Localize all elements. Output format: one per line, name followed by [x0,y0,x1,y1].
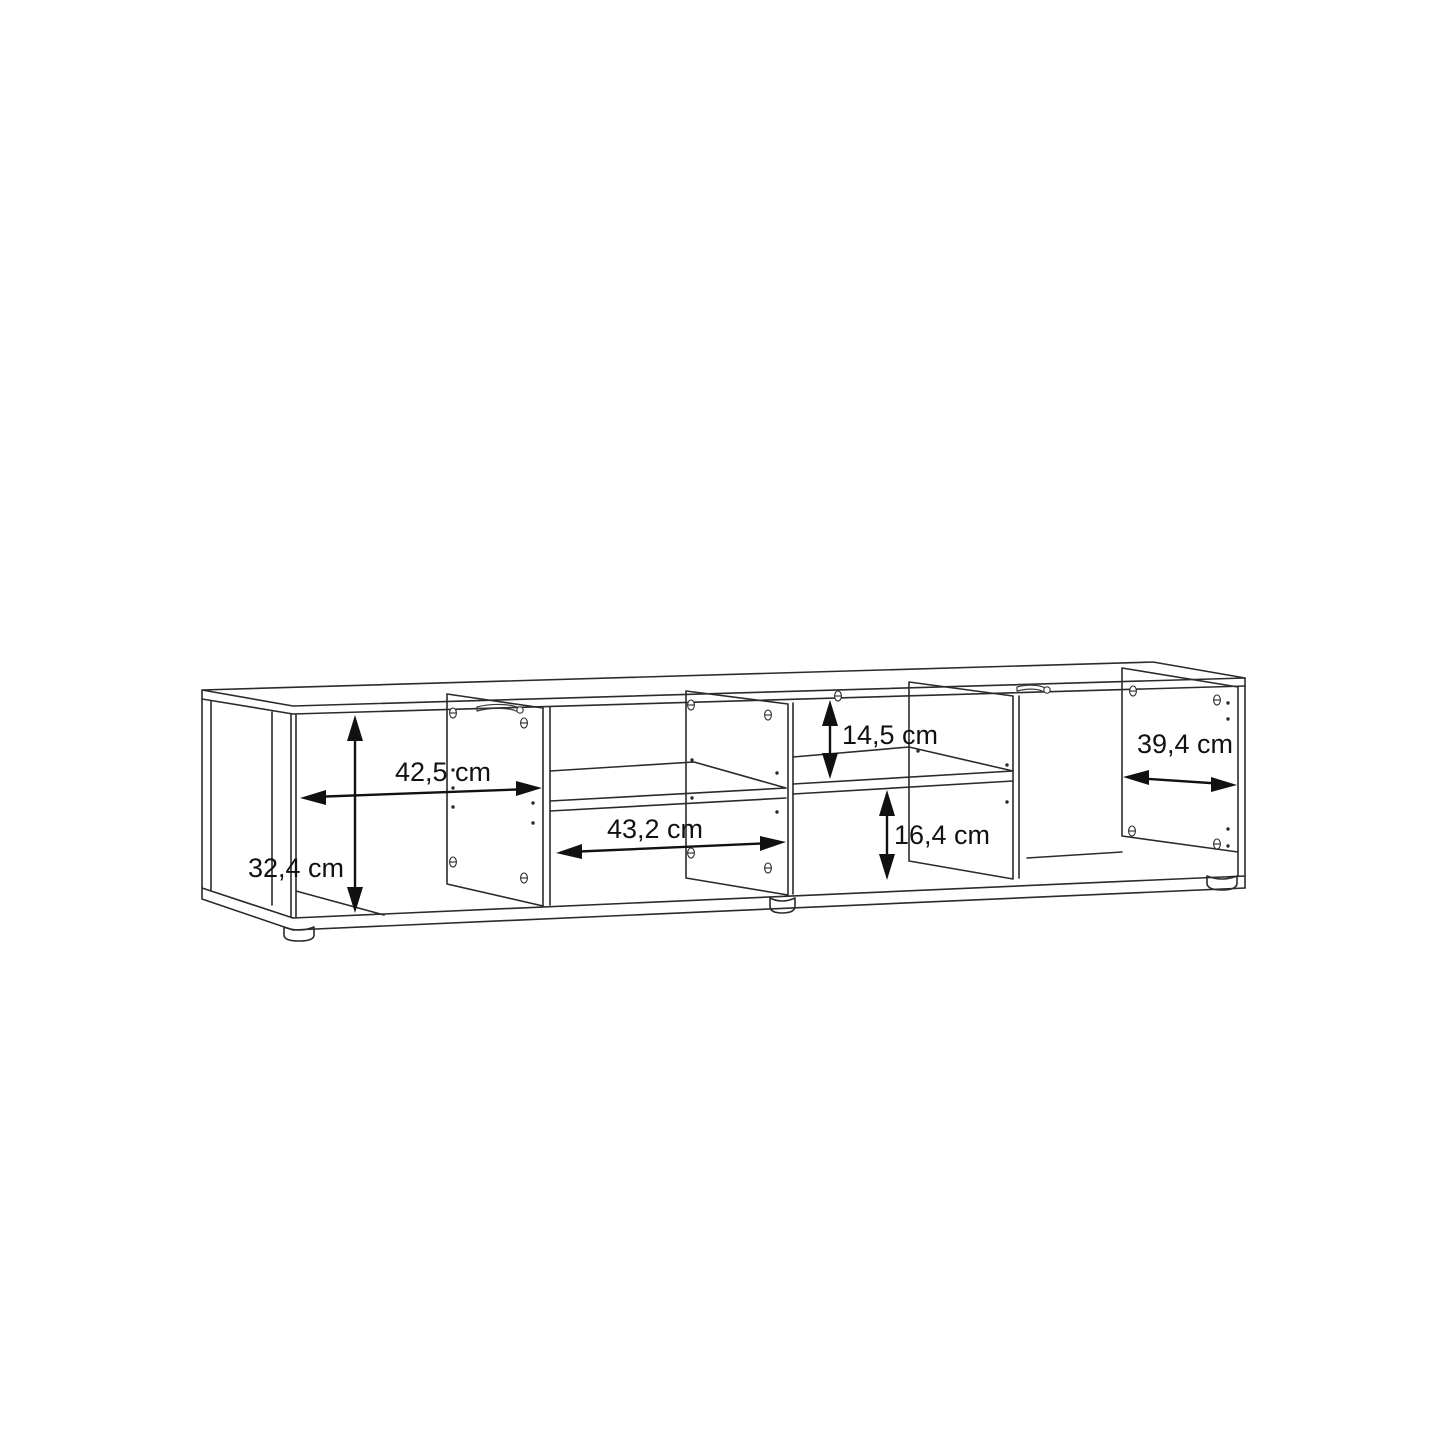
cam-hole-icon [450,857,457,867]
pin-hole-dot [1226,717,1229,720]
pin-hole-dot [1226,827,1229,830]
left-panel-inner-edges [272,712,384,918]
dimension-label-39-4: 39,4 cm [1137,729,1233,759]
cam-hole-icon [688,848,695,858]
dimension-label-14-5: 14,5 cm [842,720,938,750]
pin-hole-dot [1005,763,1008,766]
furniture-dimension-diagram: 42,5 cm 32,4 cm 43,2 cm 14,5 cm 16,4 cm … [0,0,1445,1445]
shelf-center-left [550,762,786,811]
pin-hole-dot [1226,701,1229,704]
cam-hole-icon [450,708,457,718]
pin-hole-dot [775,771,778,774]
divider-1 [447,694,550,906]
pin-hole-dot [775,810,778,813]
foot-right [1207,876,1237,890]
left-side-panel [202,690,293,930]
dimension-labels: 42,5 cm 32,4 cm 43,2 cm 14,5 cm 16,4 cm … [248,720,1233,883]
cam-hole-icon [1214,695,1221,705]
pin-hole-dot [1226,844,1229,847]
feet [284,876,1237,941]
dimension-label-16-4: 16,4 cm [894,820,990,850]
cam-hole-icon [1130,686,1137,696]
shelves [550,747,1013,811]
dimension-label-32-4: 32,4 cm [248,853,344,883]
dividers [447,682,1019,906]
cam-hole-icon [765,710,772,720]
pin-holes [451,701,1229,847]
cam-hole-icon [835,691,842,701]
pin-hole-dot [451,805,454,808]
pin-hole-dot [690,758,693,761]
dimension-label-43-2: 43,2 cm [607,814,703,844]
cam-hole-icon [765,863,772,873]
dimension-arrow-39-4 [1123,770,1237,792]
cam-hole-icon [688,700,695,710]
dimension-arrow-16-4 [879,790,895,880]
dimension-arrow-14-5 [822,700,838,779]
foot-middle [770,898,795,913]
cam-hole-icon [521,718,528,728]
pin-hole-dot [531,801,534,804]
cam-hole-icon [1129,826,1136,836]
dimension-arrow-32-4 [347,715,363,913]
pin-hole-dot [690,796,693,799]
lowboard-drawing: 42,5 cm 32,4 cm 43,2 cm 14,5 cm 16,4 cm … [0,0,1445,1445]
cam-hole-icon [521,873,528,883]
top-panel [202,662,1245,714]
pin-hole-dot [531,821,534,824]
dimension-label-42-5: 42,5 cm [395,757,491,787]
pin-hole-dot [1005,800,1008,803]
cam-hole-icon [1214,839,1221,849]
